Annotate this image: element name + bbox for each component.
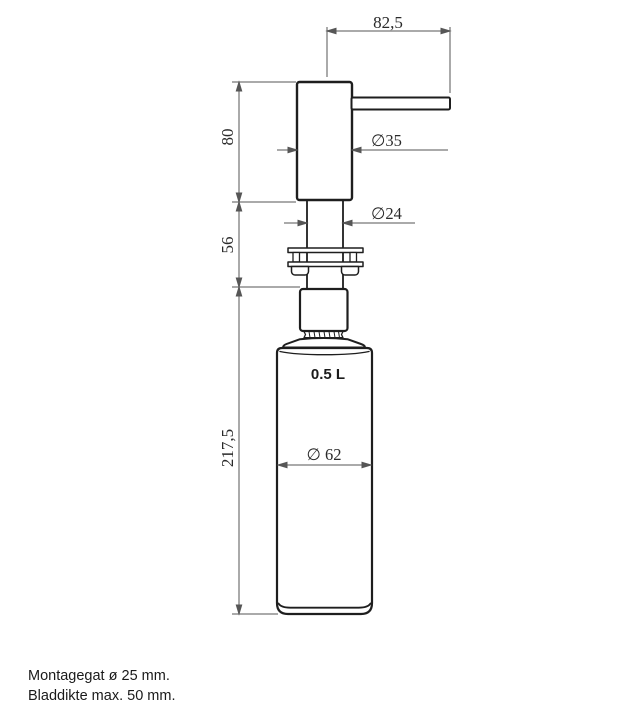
arrowhead-right	[298, 220, 307, 225]
arrowhead-left	[352, 147, 361, 152]
dim-label-head-diameter: ∅35	[371, 131, 402, 150]
flange-left-post	[293, 253, 300, 263]
technical-drawing-page: 0.5 L	[0, 0, 626, 711]
dispenser-object	[277, 82, 450, 614]
dim-label-spout-projection: 82,5	[373, 13, 403, 32]
note-max-thickness: Bladdikte max. 50 mm.	[28, 686, 175, 706]
mounting-flange	[288, 248, 363, 275]
neck-threads	[304, 332, 343, 338]
note-mounting-hole: Montagegat ø 25 mm.	[28, 666, 175, 686]
dim-label-head-height: 80	[218, 129, 237, 146]
flange-right-post	[350, 253, 357, 263]
dim-label-neck-height: 56	[218, 237, 237, 254]
dim-label-shaft-diameter: ∅24	[371, 204, 402, 223]
dim-label-body-height: 217,5	[218, 429, 237, 467]
spout	[352, 98, 451, 110]
pump-head	[297, 82, 352, 200]
arrowhead-left	[327, 28, 336, 33]
arrowhead-left	[343, 220, 352, 225]
bottle-shoulder	[283, 338, 365, 348]
arrowhead-right	[441, 28, 450, 33]
flange-left-foot	[292, 267, 309, 276]
neck-collar	[300, 289, 348, 331]
arrowhead-up	[236, 82, 241, 91]
flange-right-foot	[342, 267, 359, 276]
bottle-body	[277, 348, 372, 614]
soap-dispenser-drawing: 0.5 L	[0, 0, 626, 711]
arrowhead-up	[236, 202, 241, 211]
arrowhead-right	[288, 147, 297, 152]
capacity-label: 0.5 L	[311, 366, 345, 383]
dim-label-body-diameter: ∅ 62	[307, 445, 342, 464]
arrowhead-up	[236, 287, 241, 296]
flange-top-plate	[288, 248, 363, 253]
drawing-notes: Montagegat ø 25 mm. Bladdikte max. 50 mm…	[28, 666, 175, 706]
arrowhead-down	[236, 605, 241, 614]
